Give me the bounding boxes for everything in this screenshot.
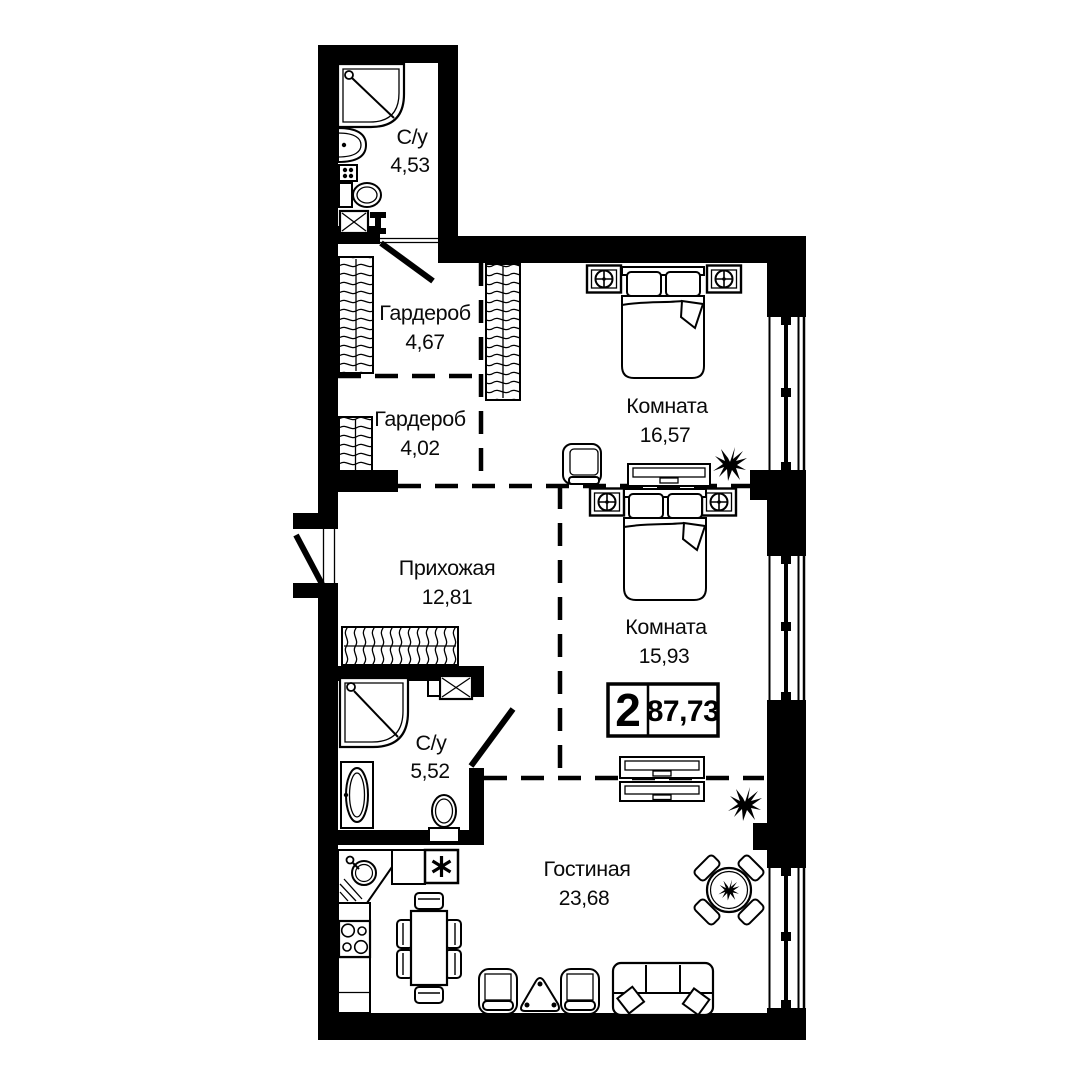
nightstand-lamp-icon (590, 489, 624, 516)
closet-icon (342, 627, 458, 665)
armchair-icon (561, 969, 599, 1014)
window-icon (767, 317, 806, 470)
room-label-ward1: Гардероб (379, 301, 470, 325)
floor-plan: С/у 4,53 Гардероб 4,67 Гардероб 4,02 При… (0, 0, 1080, 1080)
plant-icon (728, 787, 762, 821)
nightstand-lamp-icon (587, 266, 621, 293)
armchair-icon (563, 444, 601, 484)
bed-icon (624, 489, 706, 600)
dresser-icon (628, 464, 710, 486)
room-area-bath2: 5,52 (410, 760, 449, 783)
kitchen-cabinet-icon (392, 850, 425, 884)
room-label-hall: Прихожая (399, 556, 495, 580)
cabinet-icon (339, 165, 357, 181)
bathroom2-fixtures (340, 676, 472, 842)
room-label-living: Гостиная (543, 857, 630, 881)
entrance-door-swing-icon (296, 535, 322, 584)
sofa-icon (613, 963, 713, 1015)
wardrobe-rail-icon (339, 417, 372, 479)
bathroom2-door-swing-icon (471, 709, 513, 766)
bathroom1-fixtures (338, 64, 404, 234)
bed-icon (622, 267, 704, 378)
coffee-table-icon (521, 978, 559, 1011)
washing-machine-icon (428, 676, 472, 699)
room-area-hall: 12,81 (422, 586, 473, 609)
room-label-bath1: С/у (396, 125, 428, 149)
plant-icon (713, 447, 747, 481)
room-label-bed1: Комната (626, 394, 708, 418)
kitchen-corner-sink-icon (338, 850, 392, 903)
room-label-ward2: Гардероб (374, 407, 465, 431)
window-icon (767, 556, 806, 700)
apartment-badge: 2 87,73 (608, 684, 719, 736)
room-area-ward2: 4,02 (400, 437, 439, 460)
dining-table-icon (397, 893, 461, 1003)
stove-hood-icon (425, 850, 458, 883)
washing-machine-icon (340, 211, 386, 234)
room-area-bed2: 15,93 (639, 645, 690, 668)
room-area-living: 23,68 (559, 887, 610, 910)
bedroom1-furniture (563, 266, 747, 487)
room-area-ward1: 4,67 (405, 331, 444, 354)
nightstand-lamp-icon (707, 266, 741, 293)
badge-total-area: 87,73 (647, 695, 720, 728)
sink-icon (341, 762, 373, 828)
room-area-bath1: 4,53 (390, 154, 429, 177)
room-label-bath2: С/у (415, 731, 447, 755)
dresser-icon (620, 782, 704, 801)
badge-rooms-count: 2 (615, 684, 641, 736)
toilet-icon (429, 795, 459, 842)
floor-plan-svg: С/у 4,53 Гардероб 4,67 Гардероб 4,02 При… (0, 0, 1080, 1080)
wardrobe-rail-icon (339, 257, 373, 373)
armchair-icon (479, 969, 517, 1014)
room-area-bed1: 16,57 (640, 424, 691, 447)
wardrobe-rail-icon (486, 264, 520, 400)
shower-icon (338, 64, 404, 127)
nightstand-lamp-icon (702, 489, 736, 516)
bathroom1-door-swing-icon (381, 243, 433, 281)
sink-icon (338, 128, 366, 162)
dresser-icon (620, 757, 704, 778)
round-table-icon (693, 854, 765, 926)
stove-icon (339, 921, 370, 957)
toilet-icon (339, 183, 381, 207)
shower-icon (340, 678, 408, 747)
window-icon (767, 868, 806, 1008)
windows (767, 317, 806, 1008)
room-label-bed2: Комната (625, 615, 707, 639)
kitchen-furniture (338, 850, 461, 1013)
